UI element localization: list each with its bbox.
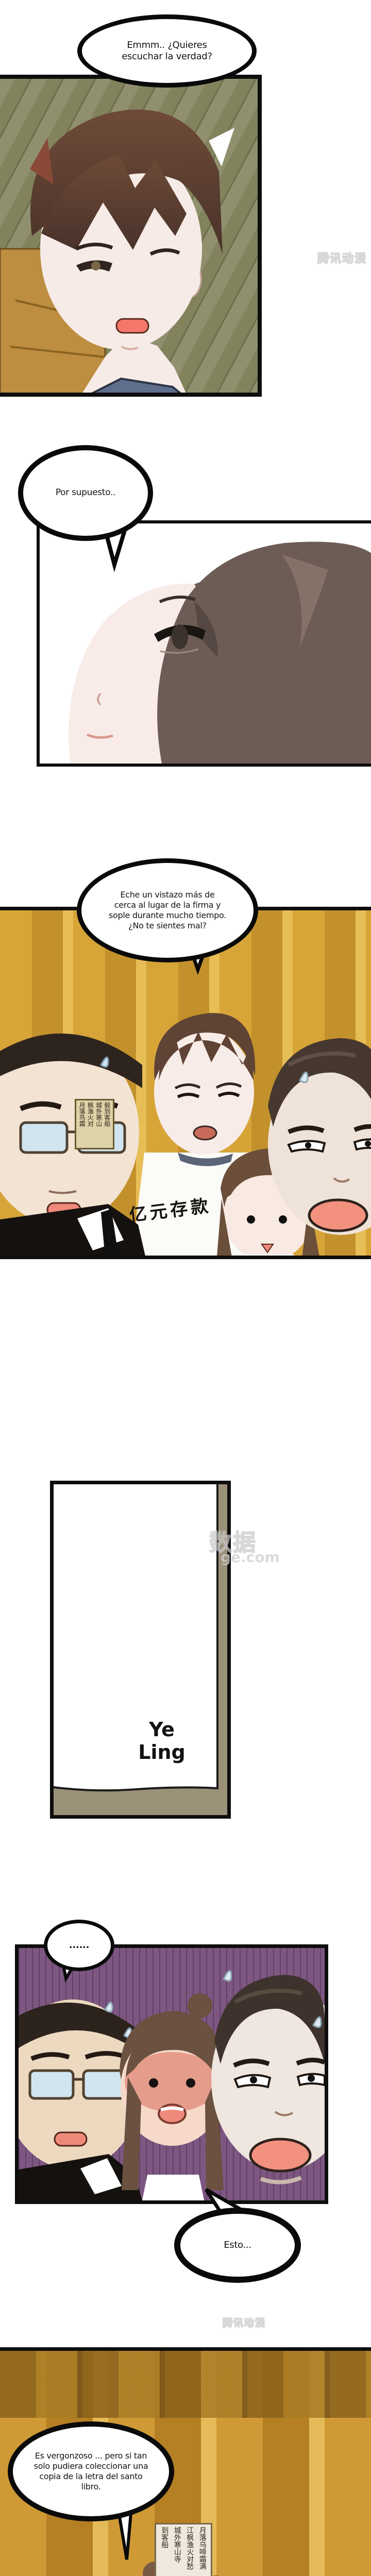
scroll-column: 枫渔火对 [87, 1102, 93, 1146]
man-bust-illustration [0, 79, 262, 397]
scroll-column: 江枫渔火对愁 [186, 2527, 193, 2576]
scroll-column: 月落乌啼霜满 [199, 2527, 206, 2576]
speech-bubble-3: Eche un vistazo más de cerca al lugar de… [77, 858, 258, 962]
speech-bubble-2-text: Por supuesto.. [56, 487, 115, 498]
scroll-column: 城外寒山寺 [174, 2527, 181, 2576]
comic-page: Emmm.. ¿Quieres escuchar la verdad? 腾讯动漫… [0, 0, 371, 2576]
speech-bubble-5: Esto... [174, 2208, 301, 2283]
girl-profile-illustration [40, 523, 371, 767]
scroll-column: 月落鸟霜 [79, 1102, 85, 1146]
calligraphy-scroll: 毂到客船 城外寒山 枫渔火对 月落鸟霜 [75, 1099, 114, 1149]
speech-bubble-6-text: Es vergonzoso ... pero si tan solo pudie… [34, 2451, 148, 2492]
paper-edges [54, 1484, 227, 1815]
speech-bubble-1-text: Emmm.. ¿Quieres escuchar la verdad? [122, 40, 212, 63]
speech-bubble-1: Emmm.. ¿Quieres escuchar la verdad? [77, 14, 257, 88]
speech-bubble-6: Es vergonzoso ... pero si tan solo pudie… [8, 2421, 174, 2521]
speech-bubble-3-text: Eche un vistazo más de cerca al lugar de… [109, 890, 226, 930]
watermark-tencent-3: 腾讯动漫 [223, 2315, 266, 2329]
scroll-column: 城外寒山 [96, 1102, 102, 1146]
panel-1 [0, 75, 262, 397]
panel-5 [15, 1944, 328, 2204]
scroll-column: 毂到客船 [104, 1102, 110, 1146]
speech-bubble-2: Por supuesto.. [18, 445, 153, 541]
three-faces-illustration [19, 1948, 325, 2200]
watermark-tencent-1: 腾讯动漫 [317, 249, 367, 266]
speech-bubble-4: ...... [44, 1920, 114, 1971]
speech-bubble-5-text: Esto... [224, 2240, 251, 2251]
scroll-column: 到客船 [161, 2527, 168, 2576]
speech-bubble-4-text: ...... [69, 1940, 89, 1951]
hanging-scroll: 月落乌啼霜满 江枫渔火对愁 城外寒山寺 到客船 [155, 2523, 212, 2576]
paper-name-text: Ye Ling [131, 1719, 193, 1764]
panel-4-paper: Ye Ling [50, 1481, 231, 1819]
panel-2 [37, 520, 371, 767]
